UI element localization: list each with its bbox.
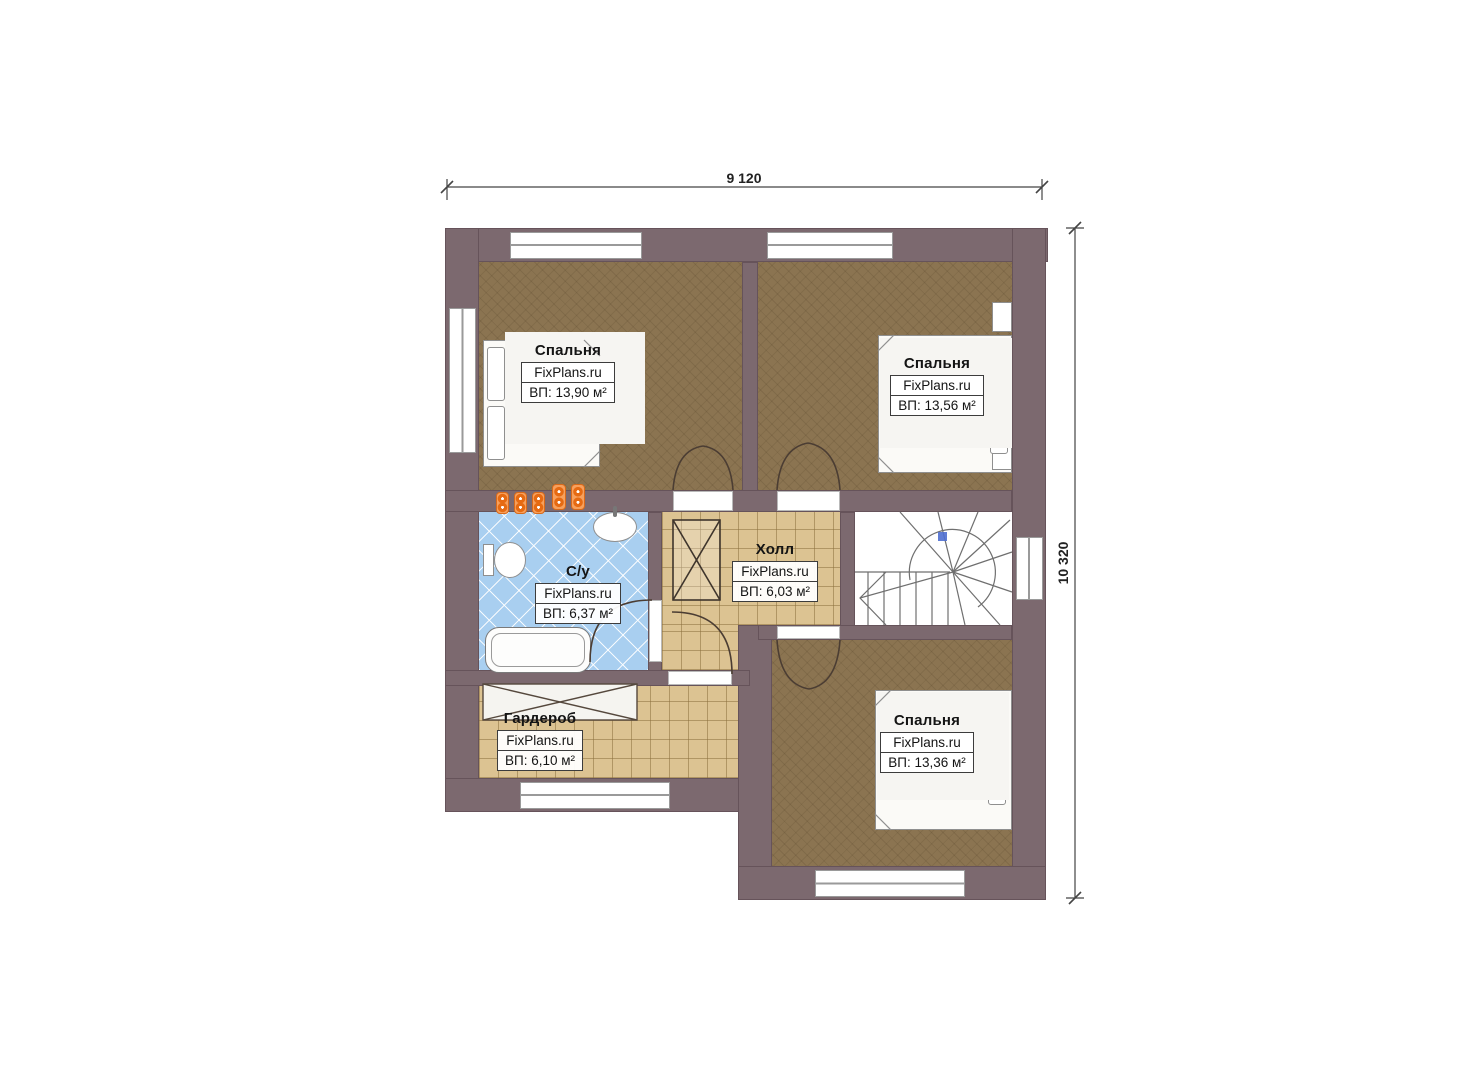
- room-info-box: FixPlans.ru ВП: 13,90 м²: [521, 362, 615, 403]
- room-info-box: FixPlans.ru ВП: 6,03 м²: [732, 561, 818, 602]
- room-label-bedroom-2: Спальня FixPlans.ru ВП: 13,56 м²: [867, 355, 1007, 416]
- radiator-icon: [496, 492, 509, 514]
- radiator-icon: [532, 492, 545, 514]
- watermark: FixPlans.ru: [522, 363, 614, 382]
- watermark: FixPlans.ru: [891, 376, 983, 395]
- watermark: FixPlans.ru: [881, 733, 973, 752]
- door-threshold-bedroom-2: [777, 491, 840, 511]
- room-area: ВП: 6,10 м²: [498, 750, 582, 770]
- dimension-width-label: 9 120: [704, 170, 784, 186]
- wall-hall-stairs: [840, 512, 855, 640]
- bathtub-icon: [485, 627, 591, 673]
- room-label-hall: Холл FixPlans.ru ВП: 6,03 м²: [715, 541, 835, 602]
- door-threshold-bedroom-1: [673, 491, 733, 511]
- pillow-icon: [487, 406, 505, 460]
- room-area: ВП: 13,36 м²: [881, 752, 973, 772]
- room-area: ВП: 6,03 м²: [733, 581, 817, 601]
- door-threshold-wardrobe: [668, 671, 732, 685]
- room-area: ВП: 13,90 м²: [522, 382, 614, 402]
- room-name: Спальня: [498, 342, 638, 359]
- room-name: Спальня: [857, 712, 997, 729]
- room-area: ВП: 6,37 м²: [536, 603, 620, 623]
- room-area: ВП: 13,56 м²: [891, 395, 983, 415]
- room-name: Гардероб: [478, 710, 602, 727]
- room-info-box: FixPlans.ru ВП: 13,36 м²: [880, 732, 974, 773]
- nightstand-icon: [992, 302, 1012, 332]
- room-label-wardrobe: Гардероб FixPlans.ru ВП: 6,10 м²: [478, 710, 602, 771]
- watermark: FixPlans.ru: [498, 731, 582, 750]
- room-label-bathroom: С/у FixPlans.ru ВП: 6,37 м²: [518, 563, 638, 624]
- room-floor-hall-corridor: [662, 625, 738, 670]
- watermark: FixPlans.ru: [733, 562, 817, 581]
- radiator-icon: [552, 484, 566, 510]
- window-top-2: [767, 232, 893, 259]
- room-label-bedroom-1: Спальня FixPlans.ru ВП: 13,90 м²: [498, 342, 638, 403]
- wall-wing-left: [738, 625, 772, 900]
- wall-bedroom-divider: [742, 262, 758, 512]
- window-bottom-left: [520, 782, 670, 809]
- toilet-icon: [483, 544, 494, 576]
- radiator-icon: [514, 492, 527, 514]
- dimension-height-label: 10 320: [1055, 523, 1071, 603]
- door-threshold-bedroom-3: [777, 626, 840, 639]
- room-info-box: FixPlans.ru ВП: 6,37 м²: [535, 583, 621, 624]
- window-top-1: [510, 232, 642, 259]
- faucet-icon: [613, 506, 617, 517]
- room-label-bedroom-3: Спальня FixPlans.ru ВП: 13,36 м²: [857, 712, 997, 773]
- stairwell-area: [855, 512, 1012, 625]
- room-name: Спальня: [867, 355, 1007, 372]
- radiator-icon: [571, 484, 585, 510]
- window-right-stairs: [1016, 537, 1043, 600]
- window-left: [449, 308, 476, 453]
- room-name: С/у: [518, 563, 638, 580]
- floor-plan-page: Спальня FixPlans.ru ВП: 13,90 м² Спальня…: [0, 0, 1474, 1080]
- window-bottom-wing: [815, 870, 965, 897]
- door-threshold-bathroom: [649, 600, 662, 662]
- room-info-box: FixPlans.ru ВП: 13,56 м²: [890, 375, 984, 416]
- room-info-box: FixPlans.ru ВП: 6,10 м²: [497, 730, 583, 771]
- room-name: Холл: [715, 541, 835, 558]
- watermark: FixPlans.ru: [536, 584, 620, 603]
